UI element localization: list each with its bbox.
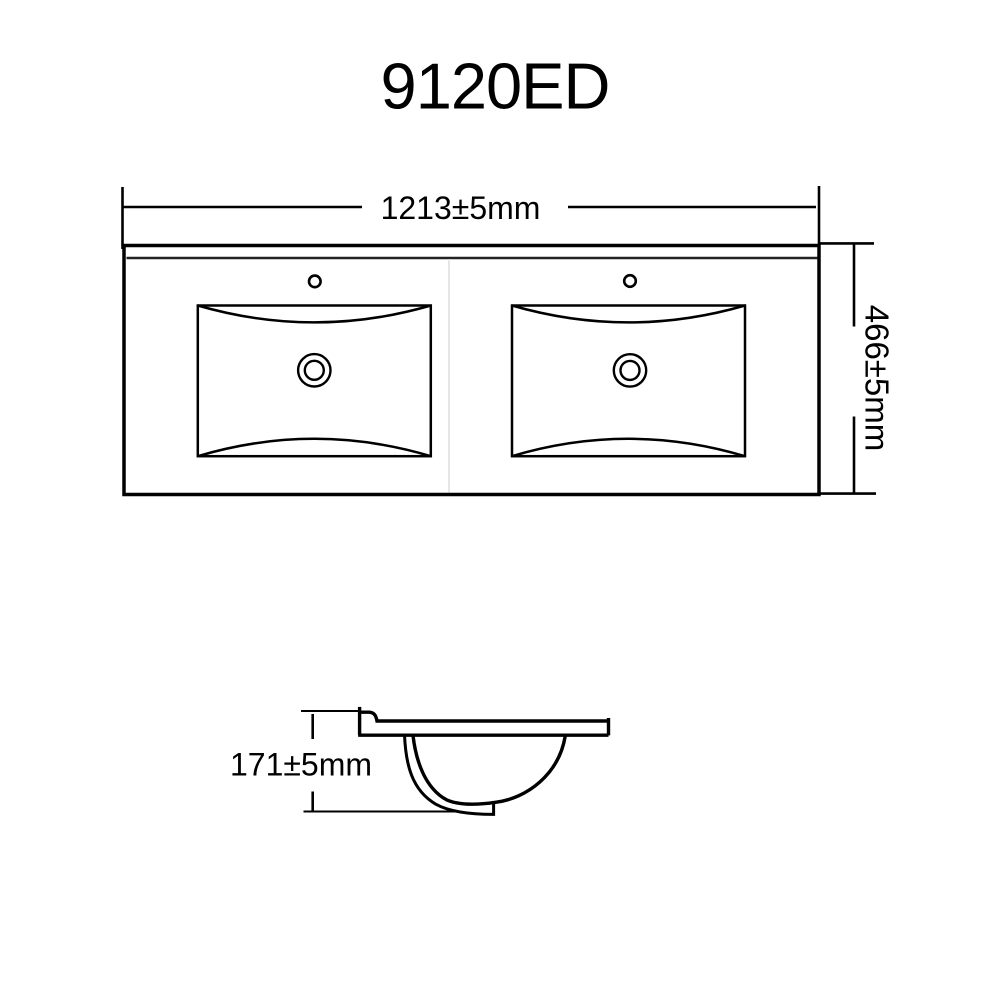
svg-text:1213±5mm: 1213±5mm [381, 190, 541, 226]
svg-text:171±5mm: 171±5mm [230, 747, 372, 783]
svg-text:9120ED: 9120ED [381, 50, 610, 123]
svg-text:466±5mm: 466±5mm [859, 305, 896, 452]
